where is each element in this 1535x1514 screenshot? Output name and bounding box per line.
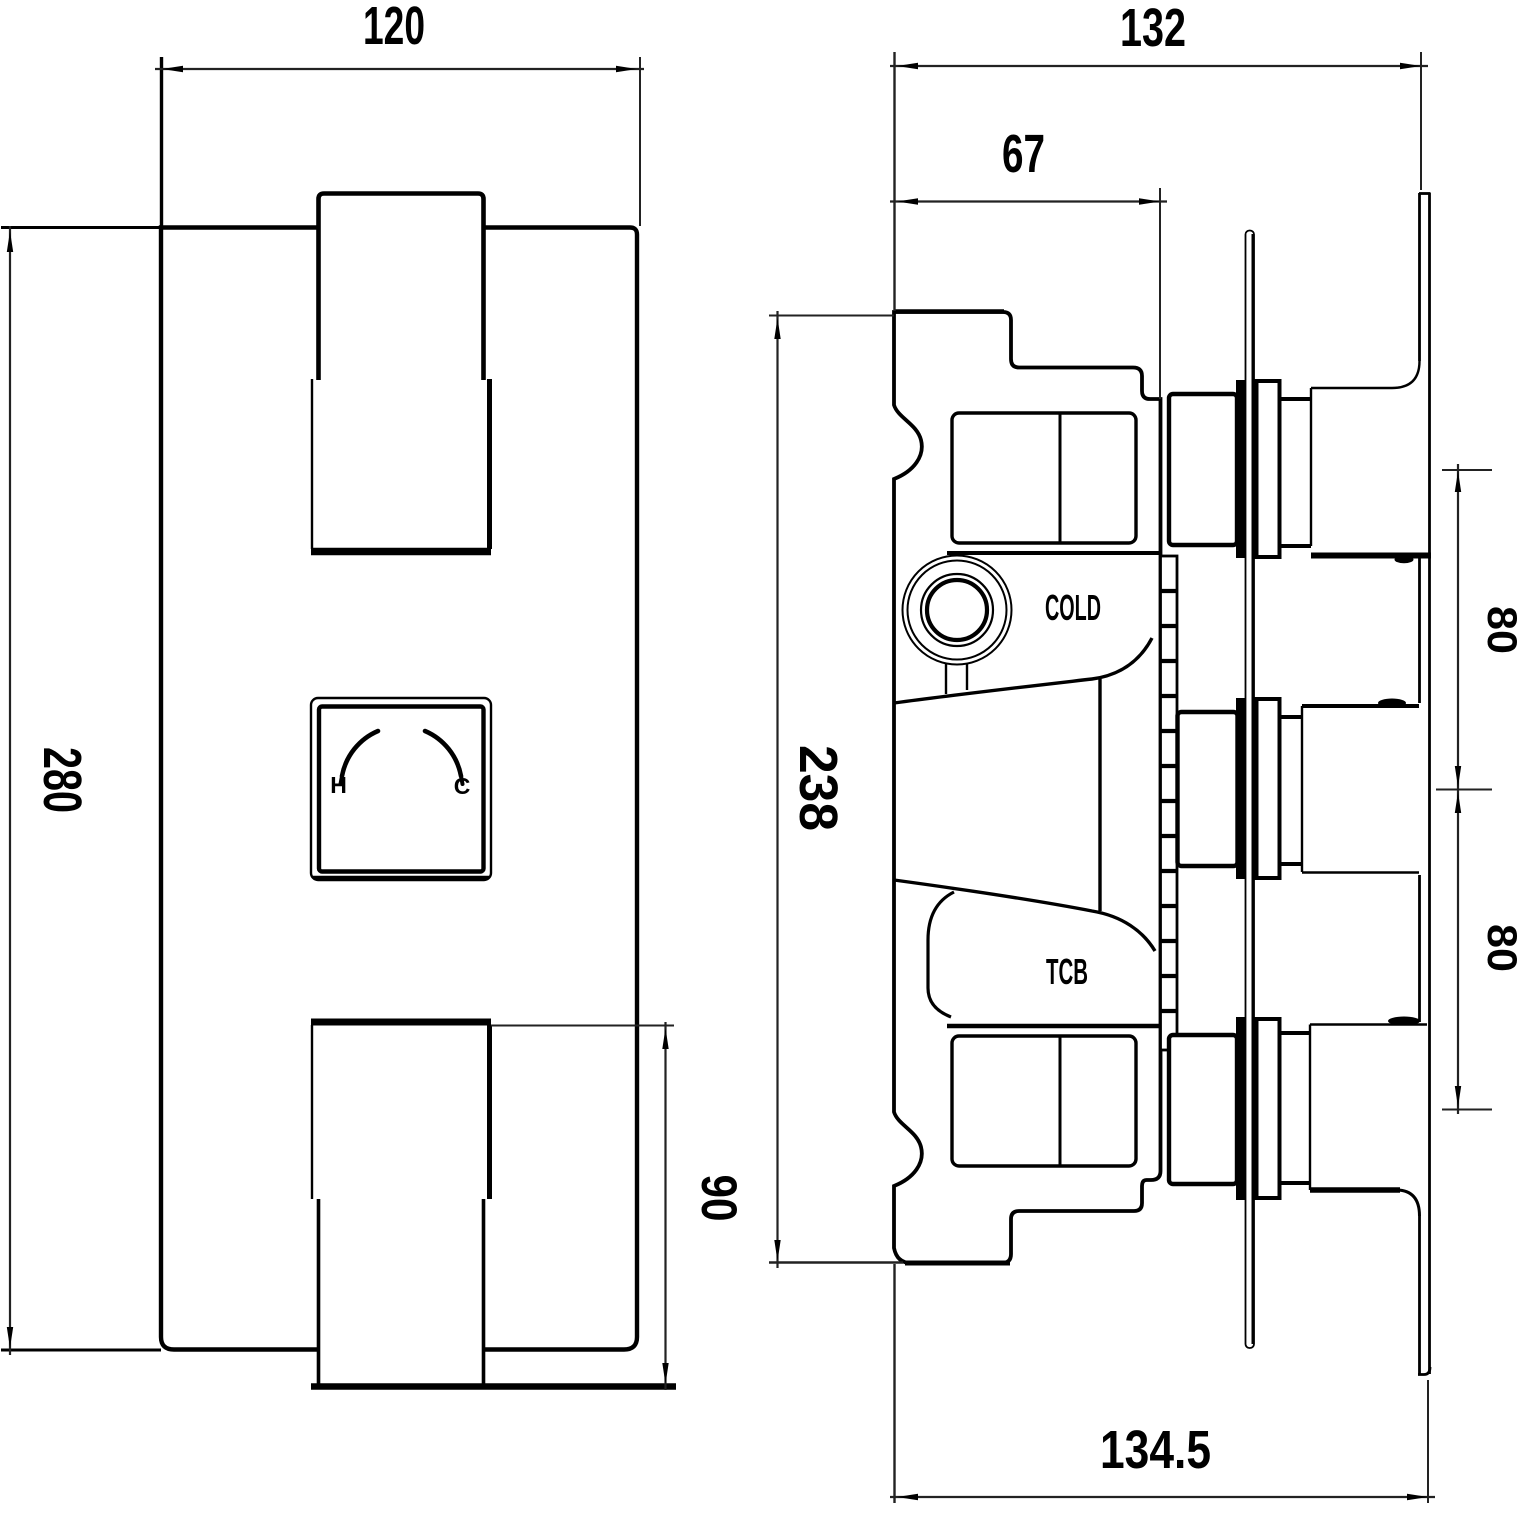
svg-text:90: 90 [691, 1175, 747, 1222]
svg-text:132: 132 [1120, 0, 1186, 58]
svg-text:80: 80 [1479, 606, 1526, 654]
svg-text:67: 67 [1002, 124, 1045, 184]
svg-text:238: 238 [788, 745, 848, 831]
svg-text:TCB: TCB [1046, 951, 1088, 992]
svg-text:H: H [330, 772, 347, 798]
svg-text:120: 120 [363, 0, 425, 56]
svg-text:134.5: 134.5 [1100, 1420, 1211, 1480]
svg-text:280: 280 [32, 747, 92, 813]
svg-text:C: C [454, 773, 471, 799]
svg-text:COLD: COLD [1045, 587, 1101, 628]
svg-text:80: 80 [1479, 924, 1526, 972]
